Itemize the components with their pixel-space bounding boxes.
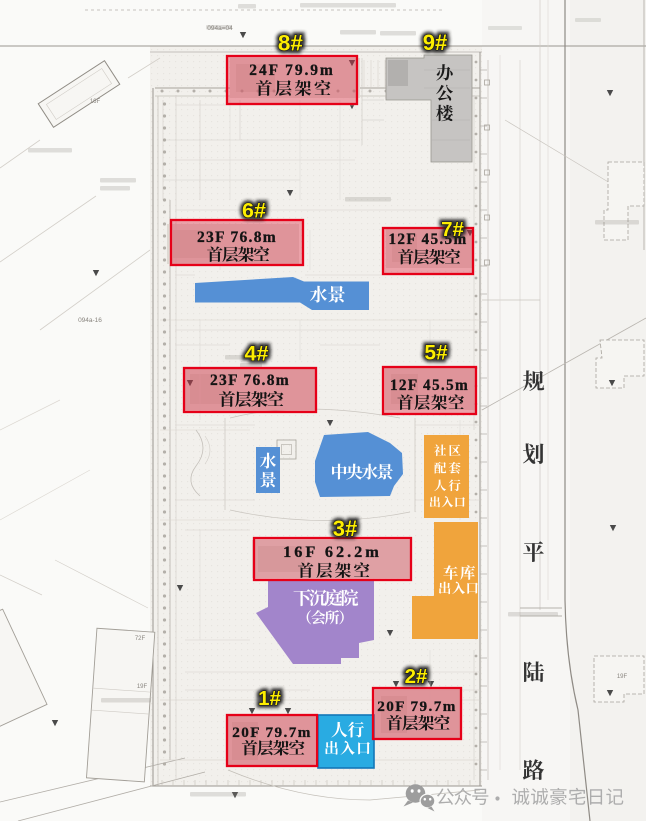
svg-text:24F 79.9m: 24F 79.9m [249, 62, 334, 79]
svg-text:72F: 72F [135, 636, 146, 642]
svg-text:094a=04: 094a=04 [207, 25, 233, 32]
svg-text:094a-16: 094a-16 [78, 317, 102, 324]
svg-text:7#: 7# [441, 218, 464, 241]
svg-text:16F: 16F [90, 99, 101, 105]
svg-text:3#: 3# [333, 516, 357, 541]
svg-text:8#: 8# [278, 30, 304, 55]
svg-text:23F 76.8m: 23F 76.8m [197, 229, 277, 246]
svg-text:19F: 19F [617, 674, 628, 680]
svg-text:9#: 9# [423, 30, 447, 55]
svg-text:5#: 5# [424, 342, 448, 365]
svg-text:1#: 1# [258, 687, 281, 710]
svg-text:4#: 4# [245, 342, 269, 366]
svg-text:12F 45.5m: 12F 45.5m [390, 377, 469, 394]
svg-text:20F 79.7m: 20F 79.7m [377, 698, 457, 715]
svg-text:2#: 2# [405, 665, 428, 688]
svg-text:6#: 6# [242, 199, 266, 223]
svg-text:16F 62.2m: 16F 62.2m [283, 542, 382, 561]
svg-text:19F: 19F [137, 684, 148, 690]
svg-text:23F 76.8m: 23F 76.8m [210, 372, 290, 389]
svg-text:20F 79.7m: 20F 79.7m [232, 724, 312, 741]
